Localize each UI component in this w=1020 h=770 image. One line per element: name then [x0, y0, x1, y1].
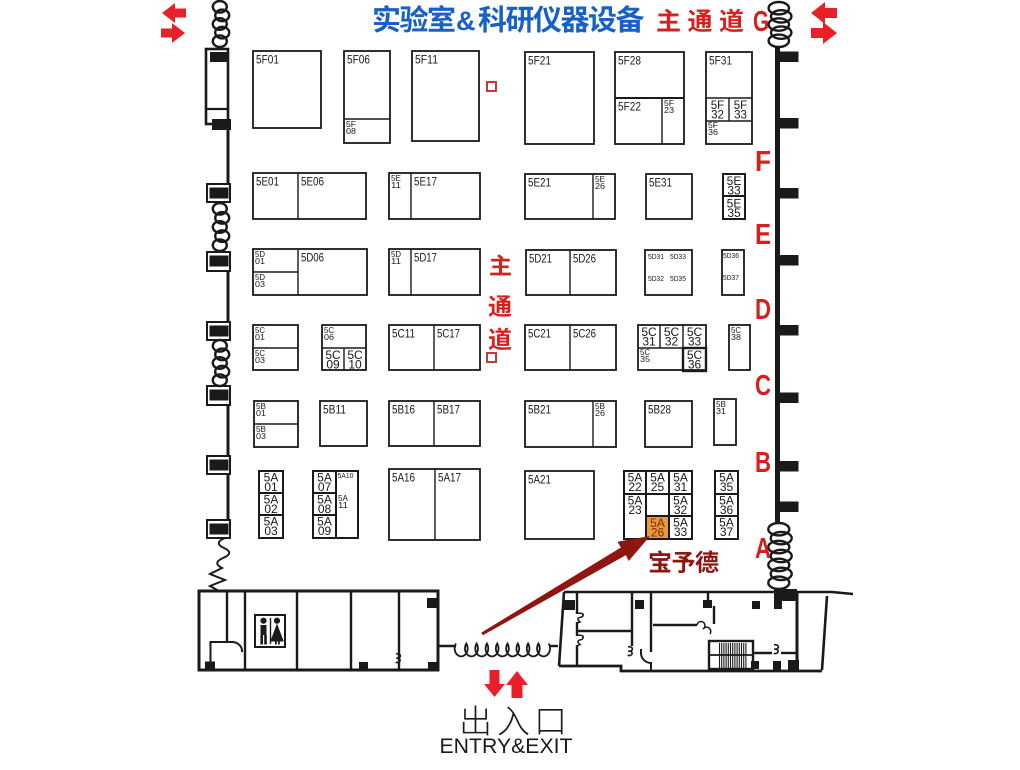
svg-text:26: 26	[651, 526, 665, 540]
svg-text:01: 01	[255, 256, 265, 266]
svg-text:23: 23	[628, 503, 642, 517]
svg-text:5D32: 5D32	[648, 276, 664, 283]
svg-text:5C11: 5C11	[392, 327, 415, 341]
svg-text:35: 35	[720, 480, 734, 494]
svg-text:38: 38	[731, 332, 741, 342]
svg-text:5A21: 5A21	[528, 473, 551, 487]
svg-text:5D26: 5D26	[573, 252, 596, 266]
svg-text:5E31: 5E31	[649, 176, 672, 190]
svg-text:5D21: 5D21	[529, 252, 552, 266]
svg-text:01: 01	[255, 332, 265, 342]
svg-text:5D36: 5D36	[723, 253, 739, 260]
svg-text:5E06: 5E06	[301, 175, 324, 189]
svg-text:5F31: 5F31	[709, 54, 732, 68]
svg-text:33: 33	[688, 335, 702, 349]
svg-text:5C26: 5C26	[573, 327, 596, 341]
svg-text:5A16: 5A16	[392, 471, 415, 485]
svg-text:03: 03	[255, 279, 265, 289]
svg-text:35: 35	[640, 354, 650, 364]
svg-text:5F06: 5F06	[347, 53, 370, 67]
svg-text:26: 26	[595, 408, 605, 418]
svg-text:5A10: 5A10	[338, 473, 354, 480]
svg-text:5C21: 5C21	[528, 327, 551, 341]
svg-text:31: 31	[674, 480, 688, 494]
svg-text:5D31: 5D31	[648, 254, 664, 261]
svg-text:01: 01	[256, 408, 266, 418]
svg-text:F: F	[755, 146, 771, 178]
svg-text:5F21: 5F21	[528, 54, 551, 68]
svg-text:B: B	[755, 447, 771, 479]
svg-text:25: 25	[651, 480, 665, 494]
svg-text:5E17: 5E17	[414, 175, 437, 189]
svg-text:5A17: 5A17	[438, 471, 461, 485]
svg-text:5E01: 5E01	[256, 175, 279, 189]
svg-text:11: 11	[338, 500, 348, 510]
svg-text:5F01: 5F01	[256, 53, 279, 67]
svg-text:5D33: 5D33	[670, 254, 686, 261]
svg-text:5D37: 5D37	[723, 275, 739, 282]
svg-text:33: 33	[674, 525, 688, 539]
svg-text:32: 32	[665, 335, 679, 349]
svg-text:D: D	[755, 294, 771, 326]
svg-text:36: 36	[688, 358, 702, 372]
svg-text:10: 10	[348, 358, 362, 372]
svg-text:11: 11	[391, 256, 401, 266]
svg-text:5D17: 5D17	[414, 251, 437, 265]
svg-text:&: &	[456, 6, 476, 36]
svg-text:37: 37	[720, 525, 734, 539]
svg-text:5F11: 5F11	[415, 53, 438, 67]
svg-text:5D06: 5D06	[301, 251, 324, 265]
svg-text:5B16: 5B16	[392, 403, 415, 417]
svg-text:5F28: 5F28	[618, 54, 641, 68]
svg-text:08: 08	[346, 126, 356, 136]
svg-text:23: 23	[664, 105, 674, 115]
svg-text:03: 03	[264, 524, 278, 538]
svg-text:C: C	[755, 370, 771, 402]
svg-text:31: 31	[716, 406, 726, 416]
svg-text:G: G	[753, 6, 769, 38]
svg-text:A: A	[755, 533, 771, 565]
svg-text:03: 03	[256, 431, 266, 441]
svg-text:03: 03	[255, 355, 265, 365]
svg-text:5F22: 5F22	[618, 100, 641, 114]
svg-text:33: 33	[734, 110, 747, 122]
svg-text:35: 35	[727, 206, 741, 220]
svg-text:5B21: 5B21	[528, 403, 551, 417]
svg-text:26: 26	[595, 181, 605, 191]
svg-text:5C17: 5C17	[437, 327, 460, 341]
svg-text:5B11: 5B11	[323, 403, 346, 417]
svg-text:22: 22	[628, 480, 642, 494]
svg-text:5B28: 5B28	[648, 403, 671, 417]
svg-text:ENTRY&EXIT: ENTRY&EXIT	[440, 734, 573, 758]
svg-text:5D35: 5D35	[670, 276, 686, 283]
svg-text:5B17: 5B17	[437, 403, 460, 417]
svg-text:36: 36	[708, 127, 718, 137]
svg-text:5E21: 5E21	[528, 176, 551, 190]
svg-text:E: E	[755, 219, 771, 251]
svg-text:11: 11	[391, 180, 401, 190]
svg-text:09: 09	[318, 524, 332, 538]
svg-text:09: 09	[326, 358, 340, 372]
svg-text:06: 06	[324, 332, 334, 342]
